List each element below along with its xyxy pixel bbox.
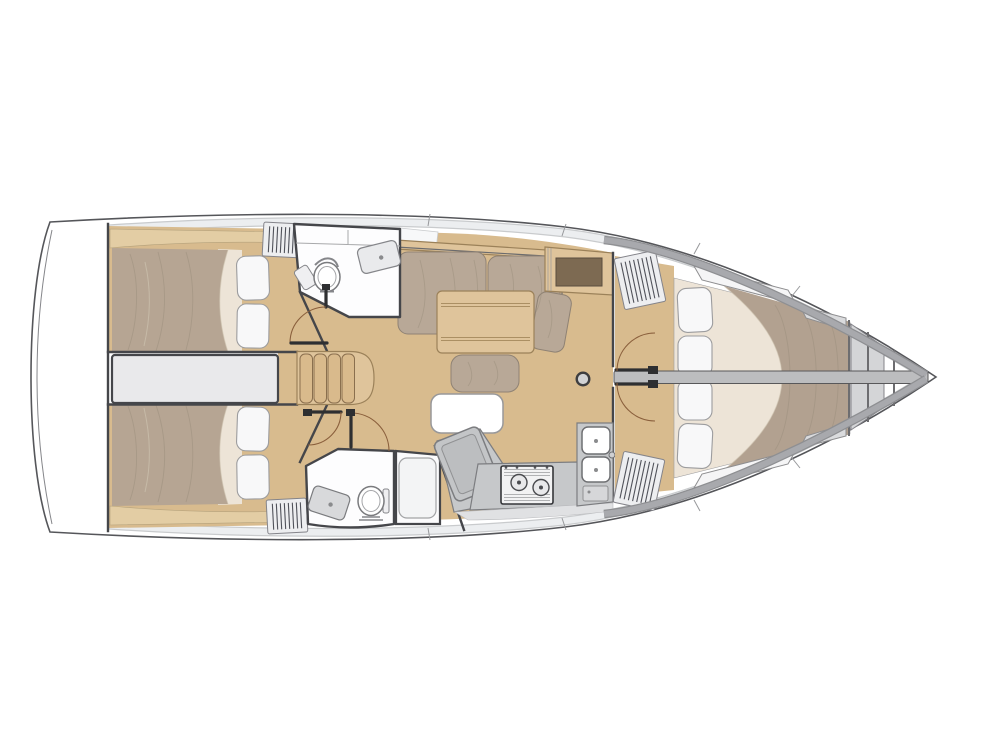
companionway-stairs	[297, 352, 374, 405]
pillow	[678, 336, 712, 376]
stair-tread	[328, 354, 341, 403]
pillow	[677, 423, 713, 469]
shower-stall	[396, 451, 440, 524]
pillow	[677, 287, 713, 333]
pillow	[236, 255, 270, 300]
sideboard-inset	[556, 258, 602, 286]
yacht-floor-plan	[0, 0, 993, 745]
shower-tray	[399, 458, 436, 518]
aft-cabin-starboard	[108, 404, 327, 534]
head-starboard	[306, 449, 440, 527]
aft-cabin-port	[108, 222, 327, 352]
galley-sink-unit	[577, 423, 615, 506]
stair-tread	[314, 354, 327, 403]
hanging-locker-stbd-aft	[266, 498, 308, 534]
pillow	[236, 406, 270, 451]
salon-table	[437, 291, 534, 353]
aft-cabin-port-bed	[112, 248, 228, 352]
engine-box	[112, 355, 278, 403]
faucet	[609, 452, 615, 458]
centerline-partition	[614, 371, 928, 384]
floor-plan-canvas	[0, 0, 993, 745]
galley-stove	[501, 466, 553, 504]
stair-tread	[342, 354, 355, 403]
pillow	[237, 455, 270, 500]
sideboard-cabinet	[545, 247, 613, 295]
ottoman	[451, 355, 519, 392]
folding-table	[431, 394, 503, 433]
aft-cabin-stbd-bed	[112, 404, 228, 506]
stair-tread	[300, 354, 313, 403]
sink-drainer	[583, 486, 608, 501]
pillow	[678, 380, 712, 420]
mast-post	[577, 373, 590, 386]
pillow	[237, 304, 270, 349]
